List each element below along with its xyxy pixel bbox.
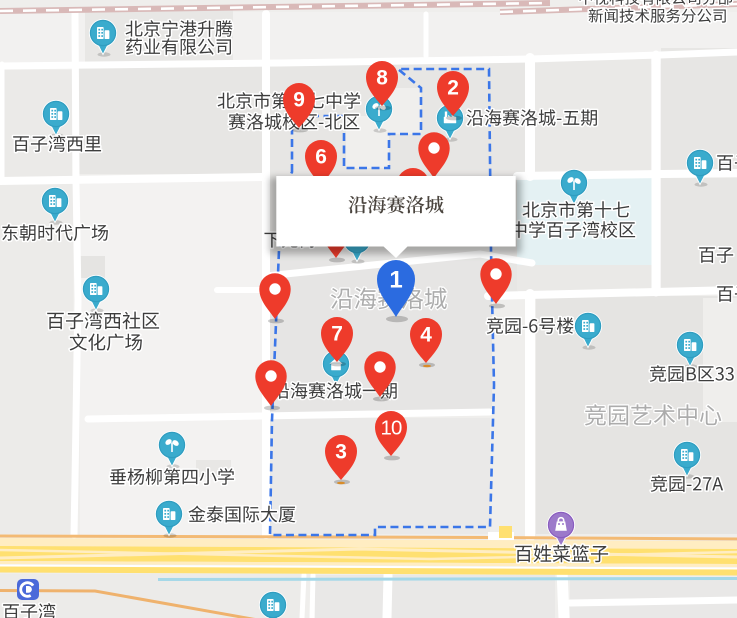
svg-text:8: 8 [376, 67, 388, 90]
svg-text:1: 1 [389, 267, 402, 294]
svg-text:4: 4 [420, 324, 432, 347]
svg-text:7: 7 [331, 323, 343, 346]
svg-text:2: 2 [447, 77, 459, 100]
svg-text:10: 10 [380, 417, 402, 439]
svg-text:6: 6 [315, 146, 327, 169]
svg-text:9: 9 [293, 89, 305, 112]
svg-text:3: 3 [335, 441, 347, 464]
